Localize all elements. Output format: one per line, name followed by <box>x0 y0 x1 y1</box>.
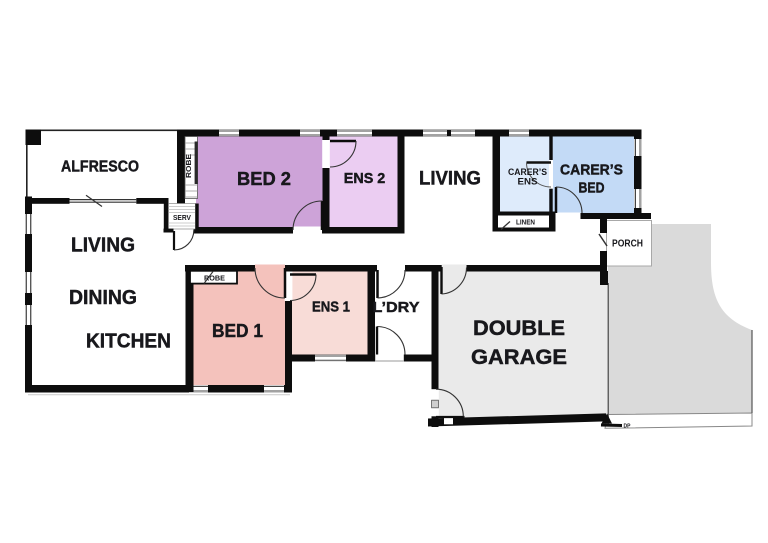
svg-text:BED 1: BED 1 <box>212 321 263 341</box>
svg-text:BED 2: BED 2 <box>237 169 291 189</box>
svg-text:PORCH: PORCH <box>612 239 643 250</box>
svg-text:LIVING: LIVING <box>71 235 135 257</box>
svg-text:LINEN: LINEN <box>516 218 535 227</box>
svg-text:BED: BED <box>579 180 605 197</box>
svg-text:CARER’S: CARER’S <box>560 162 623 179</box>
svg-text:DOUBLE: DOUBLE <box>473 317 565 340</box>
svg-text:KITCHEN: KITCHEN <box>86 331 171 353</box>
svg-text:DP: DP <box>624 424 632 430</box>
svg-text:GARAGE: GARAGE <box>471 346 567 369</box>
svg-text:DINING: DINING <box>69 287 137 309</box>
svg-text:L’DRY: L’DRY <box>373 299 420 316</box>
svg-text:ROBE: ROBE <box>204 274 225 283</box>
svg-text:SERV: SERV <box>173 213 191 222</box>
svg-text:LIVING: LIVING <box>419 169 481 190</box>
svg-text:ROBE: ROBE <box>184 154 193 178</box>
svg-text:ALFRESCO: ALFRESCO <box>61 159 139 176</box>
svg-text:ENS 2: ENS 2 <box>344 170 386 187</box>
svg-text:ENS: ENS <box>518 177 538 188</box>
svg-text:ENS 1: ENS 1 <box>312 299 350 316</box>
